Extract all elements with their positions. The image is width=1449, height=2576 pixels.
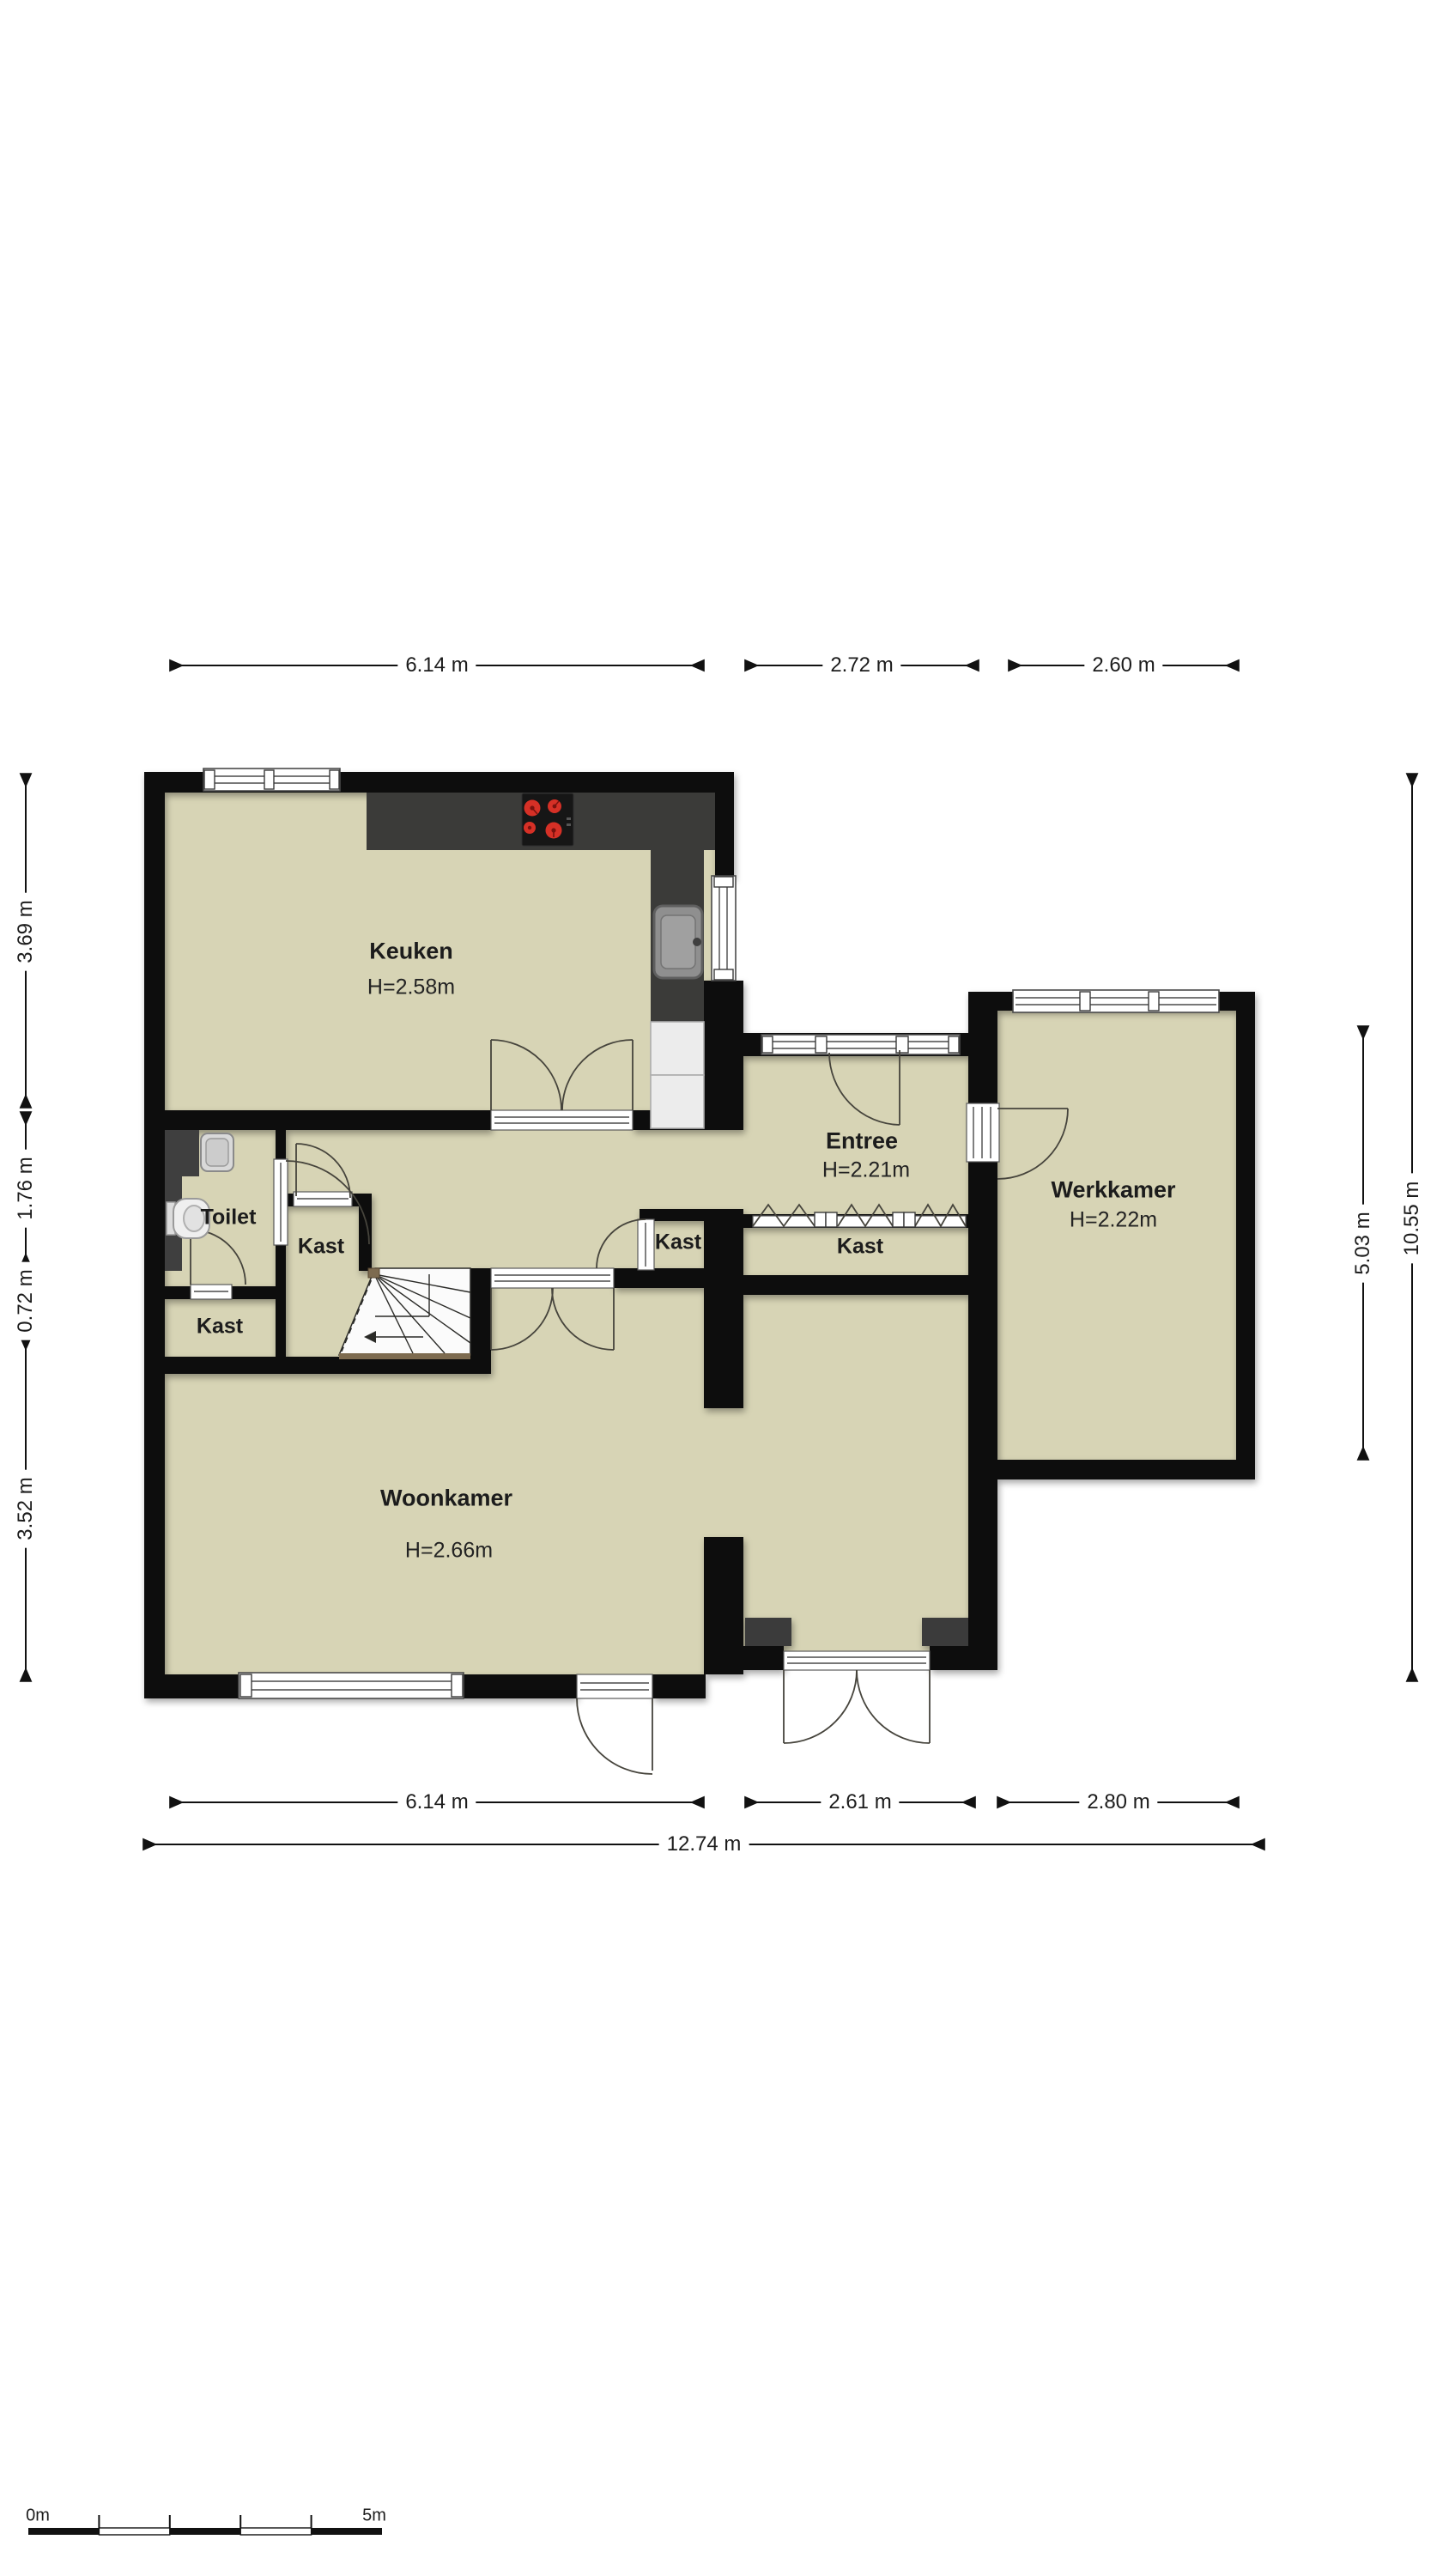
- room-label-entree: Entree: [826, 1128, 898, 1155]
- dim-top-3: 2.60 m: [1084, 653, 1162, 677]
- dim-top-1: 6.14 m: [397, 653, 476, 677]
- room-label-kast-wide: Kast: [837, 1235, 883, 1260]
- washbasin-icon: [201, 1133, 233, 1171]
- dim-bottom-total: 12.74 m: [659, 1832, 749, 1856]
- scale-bar-start-label: 0m: [26, 2506, 50, 2526]
- room-height-keuken: H=2.58m: [367, 975, 455, 1000]
- kitchen-sink-icon: [654, 906, 702, 978]
- dim-left-4: 3.52 m: [14, 1469, 38, 1547]
- scale-bar-graphic: [28, 2515, 382, 2535]
- dim-right-1: 5.03 m: [1351, 1204, 1375, 1282]
- room-label-toilet: Toilet: [201, 1206, 257, 1230]
- kitchen-appliances: [651, 1022, 704, 1128]
- dim-left-2: 1.76 m: [14, 1149, 38, 1227]
- dim-left-3: 0.72 m: [14, 1261, 38, 1340]
- floorplan-drawing: [0, 0, 1449, 2576]
- dim-bottom-1: 6.14 m: [397, 1790, 476, 1814]
- dim-top-2: 2.72 m: [822, 653, 900, 677]
- floorplan-page: Keuken H=2.58m Entree H=2.21m Werkkamer …: [0, 0, 1449, 2576]
- room-label-keuken: Keuken: [369, 939, 453, 965]
- room-label-kast-small: Kast: [655, 1230, 701, 1255]
- stove-icon: [522, 793, 573, 846]
- room-label-kast-lower: Kast: [197, 1315, 243, 1340]
- room-height-woonkamer: H=2.66m: [405, 1539, 493, 1564]
- dim-left-1: 3.69 m: [14, 892, 38, 970]
- dim-bottom-3: 2.80 m: [1079, 1790, 1157, 1814]
- room-label-werkkamer: Werkkamer: [1051, 1177, 1175, 1204]
- room-height-entree: H=2.21m: [822, 1158, 910, 1183]
- dim-right-2: 10.55 m: [1400, 1174, 1424, 1264]
- room-label-kast-mid: Kast: [298, 1235, 344, 1260]
- room-label-woonkamer: Woonkamer: [380, 1485, 512, 1512]
- room-height-werkkamer: H=2.22m: [1070, 1208, 1157, 1233]
- scale-bar-end-label: 5m: [362, 2506, 386, 2526]
- dim-bottom-2: 2.61 m: [821, 1790, 899, 1814]
